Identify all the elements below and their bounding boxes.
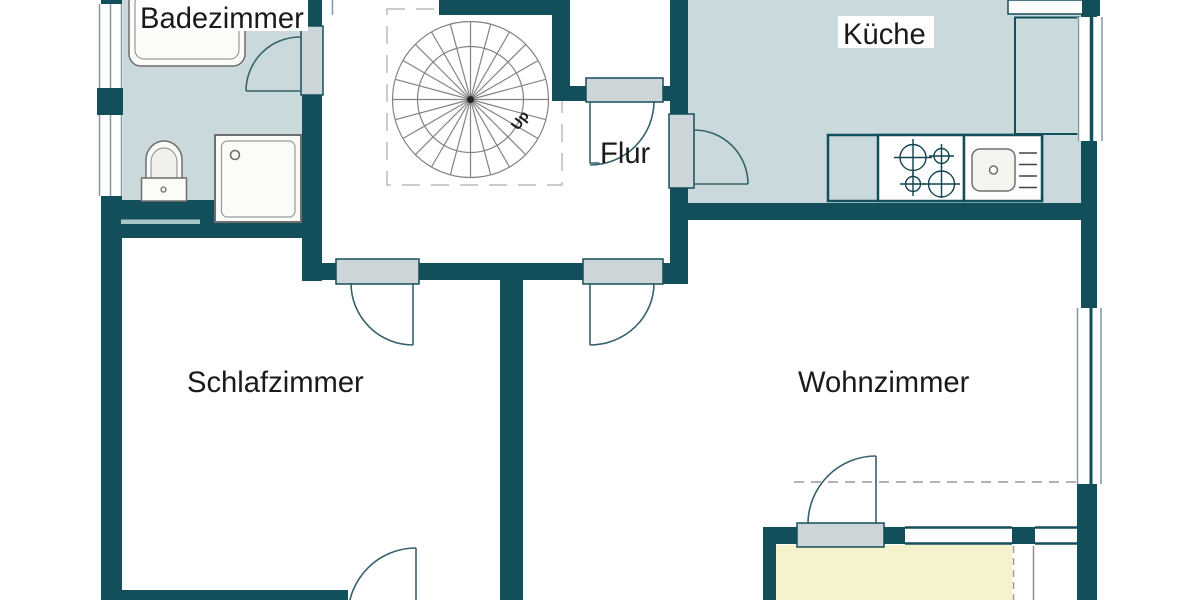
svg-text:Badezimmer: Badezimmer: [140, 3, 304, 35]
svg-text:Wohnzimmer: Wohnzimmer: [798, 367, 970, 399]
svg-text:Küche: Küche: [843, 19, 926, 51]
svg-text:Schlafzimmer: Schlafzimmer: [187, 367, 364, 399]
svg-text:Flur: Flur: [600, 138, 651, 170]
